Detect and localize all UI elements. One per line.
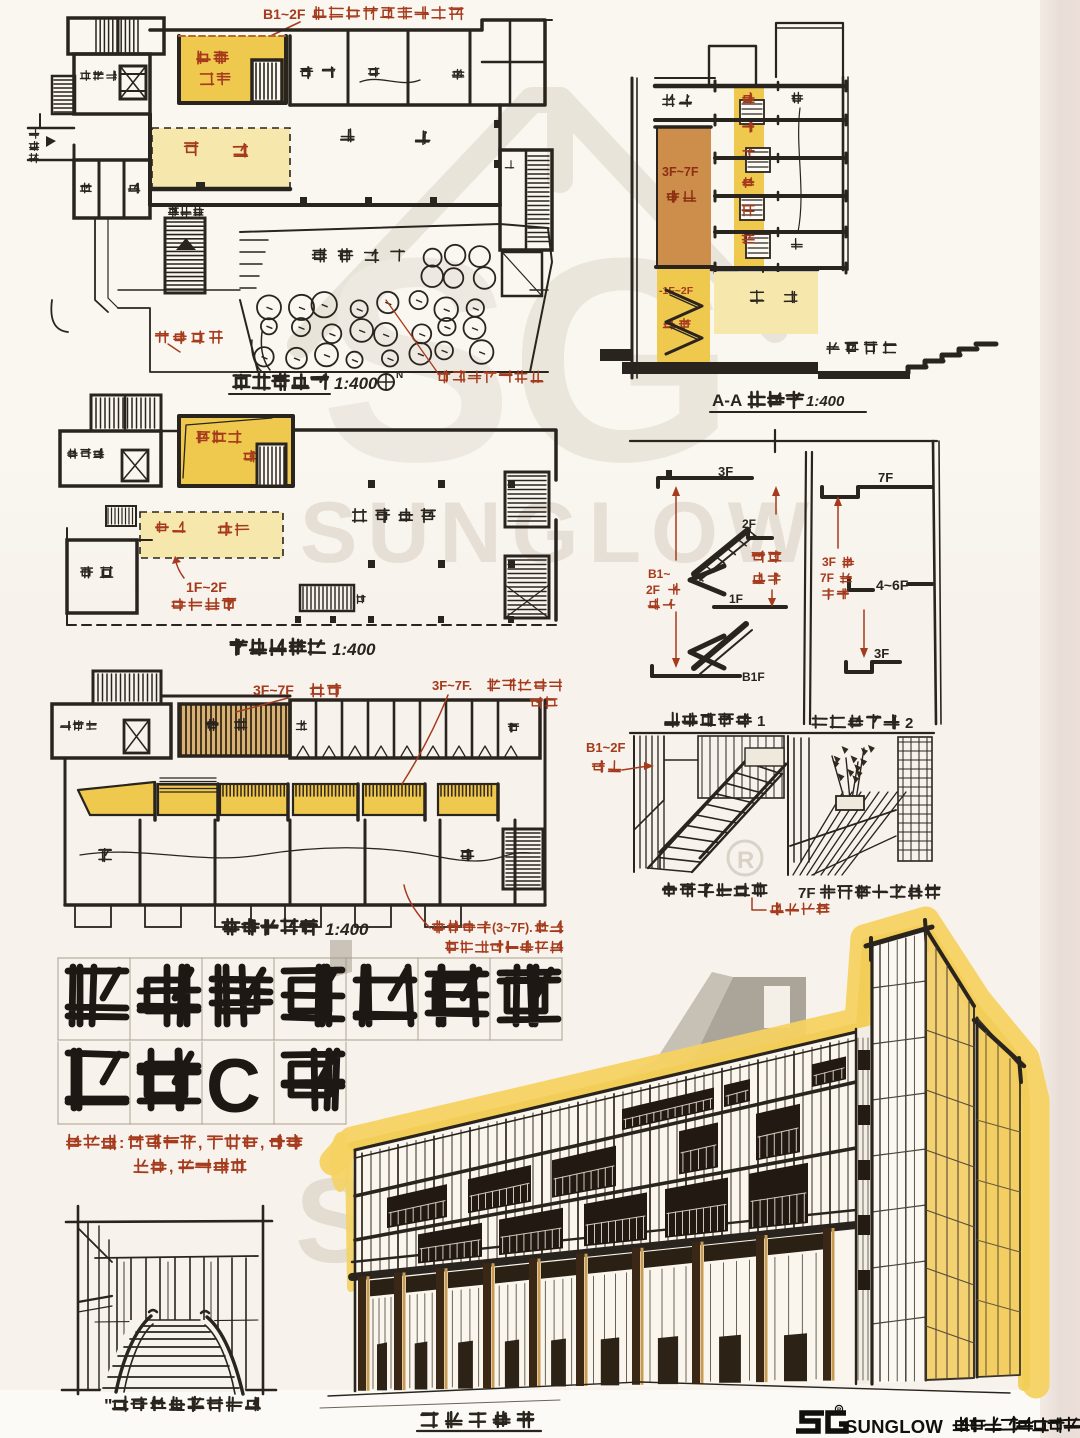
- svg-text:B1~: B1~: [648, 567, 670, 581]
- svg-text:1: 1: [757, 713, 765, 730]
- svg-text:3F~7F: 3F~7F: [662, 165, 699, 179]
- svg-text:": ": [104, 1396, 113, 1416]
- svg-text:,: ,: [169, 1159, 173, 1176]
- svg-text:7F: 7F: [878, 470, 893, 485]
- svg-text:2: 2: [905, 715, 913, 732]
- svg-text:,: ,: [260, 1135, 264, 1152]
- svg-text:N: N: [396, 370, 403, 381]
- svg-text:B1~2F: B1~2F: [263, 6, 306, 22]
- svg-text::: :: [119, 1135, 124, 1152]
- svg-text:2F: 2F: [646, 583, 660, 597]
- svg-text:,: ,: [198, 1135, 202, 1152]
- svg-text:SUNGLOW: SUNGLOW: [845, 1416, 943, 1437]
- svg-text:2F: 2F: [742, 517, 756, 531]
- svg-text:(3~7F).: (3~7F).: [492, 921, 533, 935]
- svg-text:3F: 3F: [874, 646, 889, 661]
- svg-text:B1F: B1F: [742, 670, 765, 684]
- svg-text:1:400: 1:400: [332, 640, 376, 659]
- svg-text:3F~7F.: 3F~7F.: [432, 678, 472, 693]
- svg-text:1F: 1F: [729, 592, 743, 606]
- svg-text:C: C: [206, 1044, 261, 1129]
- svg-text:7F: 7F: [798, 885, 816, 902]
- svg-text:R: R: [837, 1408, 842, 1414]
- svg-text:1F~2F: 1F~2F: [186, 579, 227, 595]
- svg-text:7F: 7F: [820, 571, 834, 585]
- svg-text:R: R: [737, 847, 754, 874]
- svg-text:3F~7F: 3F~7F: [253, 682, 294, 698]
- svg-text:3F: 3F: [718, 464, 733, 479]
- svg-text:1:400: 1:400: [806, 393, 845, 410]
- svg-text:4~6F: 4~6F: [876, 577, 909, 593]
- svg-text:B1~2F: B1~2F: [586, 740, 625, 755]
- svg-text:3F: 3F: [822, 555, 836, 569]
- svg-text:1:400: 1:400: [325, 920, 369, 939]
- svg-text:1:400: 1:400: [334, 374, 378, 393]
- svg-text:A-A: A-A: [712, 391, 742, 410]
